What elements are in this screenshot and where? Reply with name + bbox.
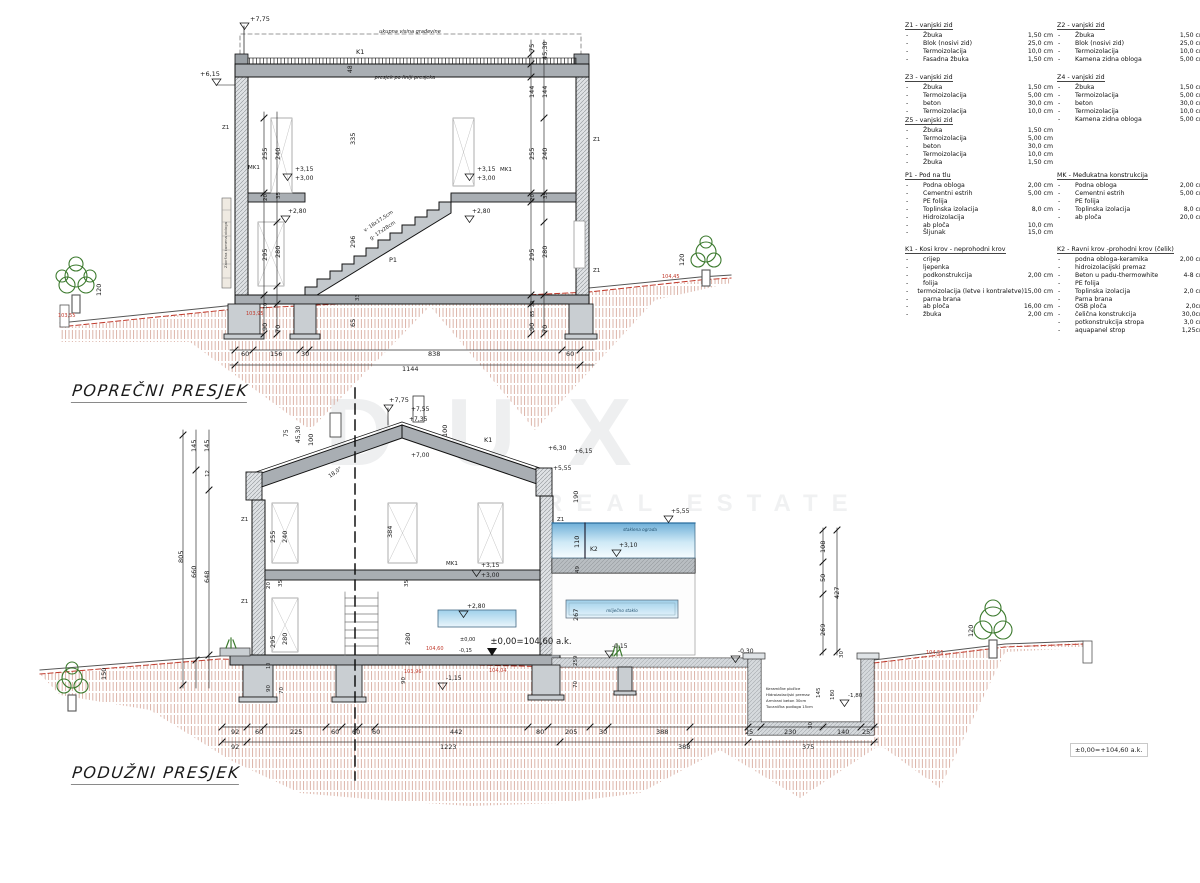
dim-label: 1223 [440, 743, 457, 751]
dim-label: 255 [269, 531, 277, 543]
elevation-label: +7,00 [411, 452, 430, 459]
legend-item: -Žbuka1,50 cm [1057, 32, 1200, 40]
legend-item: -žbuka2,00 cm [905, 311, 1053, 319]
elevation-label: ±0,00 [460, 637, 475, 643]
dim-label: 442 [450, 728, 462, 736]
dim-label: 660 [190, 566, 198, 578]
dim-label: 205 [565, 728, 577, 736]
eave-parapet [536, 468, 552, 496]
eave-parapet [246, 472, 262, 500]
dim-label: 70 [573, 681, 579, 688]
legend-item: -Podna obloga2,00 cm [1057, 182, 1200, 190]
dim-label: 50 [819, 574, 827, 582]
glass-railing-label: staklena ograda [623, 527, 657, 532]
roof-angle-label: 18,0° [328, 466, 344, 480]
dim-label: 90 [401, 677, 407, 684]
dim-label: 259 [573, 655, 579, 666]
elevation-label: +3,00 [481, 572, 500, 579]
dim-label: 240 [281, 531, 289, 543]
dim-label: 20 [266, 582, 272, 589]
pool-layer-note: Hidroizolacijski premaz [766, 692, 810, 697]
legend-item: -Termoizolacija10,0 cm [905, 151, 1053, 159]
legend-item: -Cementni estrih5,00 cm [1057, 190, 1200, 198]
dim-label: 100 [307, 434, 315, 446]
elevation-label: +6,30 [548, 445, 567, 452]
legend-item: -Termoizolacija10,0 cm [905, 48, 1053, 56]
dim-label: 60 [372, 728, 380, 736]
ground-slab [230, 655, 560, 665]
elevation-label: +7,35 [409, 416, 428, 423]
dim-label: 100 [441, 425, 449, 437]
dim-label: 92 [231, 728, 239, 736]
legend-item: -Toplinska izolacija2,0 cm [1057, 288, 1200, 296]
terrain-elevation: 104,04 [489, 668, 507, 674]
pool-layer-note: Armirani beton 30cm [766, 698, 806, 703]
legend-section-title: P1 - Pod na tlu [905, 172, 951, 180]
legend-section-title: Z5 - vanjski zid [905, 117, 953, 125]
dim-label: 375 [802, 743, 814, 751]
legend-section-title: Z3 - vanjski zid [905, 74, 953, 82]
pool-layer-note: Tucanička podloga 15cm [765, 704, 813, 709]
dim-label: 45,30 [295, 426, 302, 443]
layer-ref-label: Z1 [241, 517, 248, 523]
legend-item: -čelična konstrukcija30,0cm [1057, 311, 1200, 319]
datum-note-box: ±0,00=+104,60 a.k. [1070, 743, 1148, 757]
dim-label: 70 [279, 687, 285, 694]
legend-item: -hidroizolacijski premaz [1057, 264, 1200, 272]
legend-item: -Termoizolacija5,00 cm [905, 135, 1053, 143]
dim-label: 60 [566, 350, 574, 358]
elevation-label: +7,75 [389, 396, 409, 404]
dim-label: 60 [241, 350, 249, 358]
legend-item: -beton30,0 cm [1057, 100, 1200, 108]
legend-item: -Podna obloga2,00 cm [905, 182, 1053, 190]
dim-label: 30 [599, 728, 607, 736]
dim-label: 145 [203, 440, 211, 452]
elevation-label: +7,55 [411, 406, 430, 413]
dim-label: 75 [283, 429, 290, 437]
legend-item: -crijep [905, 256, 1053, 264]
legend-item: -podkonstrukcija2,00 cm [905, 272, 1053, 280]
elevation-label: -1,15 [446, 675, 462, 682]
dim-label: 230 [784, 728, 796, 736]
dim-label: 108 [819, 541, 827, 553]
dim-label: 49 [575, 566, 581, 573]
elevation-label: -0,30 [738, 648, 754, 655]
legend-item: -Kamena zidna obloga5,00 cm [1057, 56, 1200, 64]
datum-label: ±0,00=104,60 a.k. [490, 637, 571, 647]
dim-label: 388 [656, 728, 668, 736]
left-wall [252, 500, 265, 655]
terrain-elevation: 104,60 [426, 646, 444, 652]
low-window-glass [438, 610, 516, 627]
dim-label: 280 [404, 633, 412, 645]
dim-label: 35 [278, 580, 284, 587]
legend-item: -Toplinska izolacija8,0 cm [905, 206, 1053, 214]
legend-item: -Toplinska izolacija8,0 cm [1057, 206, 1200, 214]
dim-label: 10 [266, 663, 272, 669]
dim-label: 30 [301, 350, 309, 358]
dim-label: 140 [837, 728, 849, 736]
elevation-label: +2,80 [467, 603, 486, 610]
legend-section-k1: K1 - Kosi krov - neprohodni krov-crijep-… [905, 236, 1053, 319]
legend-section-z5: Z5 - vanjski zid-Žbuka1,50 cm-Termoizola… [905, 107, 1053, 167]
legend-item: -Žbuka1,50 cm [1057, 84, 1200, 92]
legend-item: -PE folija [905, 198, 1053, 206]
legend-item: -Beton u padu-thermowhite4-8 cm [1057, 272, 1200, 280]
dim-label: 110 [573, 536, 581, 548]
dim-label: 92 [231, 743, 239, 751]
legend-section-title: MK - Međukatna konstrukcija [1057, 172, 1148, 180]
legend-item: -podna obloga-keramika2,00 cm [1057, 256, 1200, 264]
legend-section-z2: Z2 - vanjski zid-Žbuka1,50 cm-Blok (nosi… [1057, 12, 1200, 64]
legend-item: -folija [905, 280, 1053, 288]
legend-column-2: Z2 - vanjski zid-Žbuka1,50 cm-Blok (nosi… [1057, 0, 1200, 336]
legend-item: -ab ploča20,0 cm [1057, 214, 1200, 222]
dim-label: 295 [269, 636, 277, 648]
dim-label: 60 [352, 728, 360, 736]
dim-label: 384 [386, 526, 394, 538]
dim-label: 156 [270, 350, 282, 358]
terrain-elevation: 104,55 [926, 650, 944, 656]
section-title-poduzni: PODUŽNI PRESJEK [71, 763, 241, 785]
roof-slope-left [250, 425, 402, 490]
dim-label: 12 [205, 470, 211, 477]
legend-section-title: Z1 - vanjski zid [905, 22, 953, 30]
legend-item: -Blok (nosivi zid)25,0 cm [1057, 40, 1200, 48]
legend-item: -Kamena zidna obloga5,00 cm [1057, 116, 1200, 124]
legend-item: -Termoizolacija10,0 cm [1057, 48, 1200, 56]
legend-item: -aquapanel strop1,25cm [1057, 327, 1200, 335]
elevation-label: -0,15 [612, 643, 628, 650]
dim-label: 267 [572, 609, 580, 621]
legend-section-title: Z4 - vanjski zid [1057, 74, 1105, 82]
dim-label: 25 [862, 728, 870, 736]
layer-ref-label: MK1 [446, 561, 458, 567]
elevation-label: -0,15 [459, 648, 472, 654]
dim-label: 805 [177, 551, 185, 563]
dim-label: 30 [839, 651, 845, 658]
dim-label: 35 [404, 580, 410, 587]
legend-section-k2: K2 - Ravni krov -prohodni krov (čelik)-p… [1057, 236, 1200, 335]
elevation-label: -1,80 [848, 693, 863, 699]
dim-label: 388 [678, 743, 690, 751]
legend-item: -PE folija [1057, 198, 1200, 206]
legend-item: -termoizolacija (letve i kontraletve)15,… [905, 288, 1053, 296]
dim-label: 80 [536, 728, 544, 736]
elevation-label: +5,55 [553, 465, 572, 472]
dim-label: 145 [816, 687, 822, 698]
dim-label: 150 [100, 668, 108, 680]
right-wall [540, 496, 553, 655]
legend-item: -Žbuka1,50 cm [905, 84, 1053, 92]
dim-label: 25 [745, 728, 753, 736]
dim-label: 1144 [402, 365, 419, 373]
layer-ref-label: K1 [484, 436, 492, 444]
legend-section-title: Z2 - vanjski zid [1057, 22, 1105, 30]
dim-label: 180 [830, 689, 836, 700]
staircase [345, 592, 378, 655]
legend-section-z4: Z4 - vanjski zid-Žbuka1,50 cm-Termoizola… [1057, 64, 1200, 124]
layer-ref-label: Z1 [557, 517, 564, 523]
dim-label: 90 [266, 685, 272, 692]
elevation-label: +6,15 [574, 448, 593, 455]
dim-label: 838 [428, 350, 440, 358]
roof-vent [330, 413, 341, 437]
layer-ref-label: K2 [590, 546, 598, 553]
dim-label: 60 [255, 728, 263, 736]
dim-label: 427 [833, 587, 841, 599]
legend-column-1: Z1 - vanjski zid-Žbuka1,50 cm-Blok (nosi… [905, 0, 1053, 336]
elevation-label: +3,10 [619, 542, 638, 549]
dim-label: 648 [203, 571, 211, 583]
legend-item: -Blok (nosivi zid)25,0 cm [905, 40, 1053, 48]
drawing-sheet: DUX REAL ESTATE [0, 0, 1200, 883]
legend-item: -Termoizolacija10,0 cm [1057, 108, 1200, 116]
legend-section-title: K2 - Ravni krov -prohodni krov (čelik) [1057, 246, 1174, 254]
legend-item: -Cementni estrih5,00 cm [905, 190, 1053, 198]
dim-label: 60 [331, 728, 339, 736]
construction-layers-legend: Z1 - vanjski zid-Žbuka1,50 cm-Blok (nosi… [0, 0, 1200, 340]
legend-item: -potkonstrukcija stropa3,0 cm [1057, 319, 1200, 327]
dim-label: 30 [808, 722, 814, 729]
legend-item: -Žbuka1,50 cm [905, 127, 1053, 135]
legend-item: -Termoizolacija5,00 cm [905, 92, 1053, 100]
terrain-marker [1083, 641, 1092, 663]
legend-item: -PE folija [1057, 280, 1200, 288]
legend-item: -Hidroizolacija [905, 214, 1053, 222]
legend-item: -Termoizolacija5,00 cm [1057, 92, 1200, 100]
dim-label: 120 [967, 625, 975, 637]
legend-section-title: K1 - Kosi krov - neprohodni krov [905, 246, 1006, 254]
elevation-label: +3,15 [481, 562, 500, 569]
dim-label: 145 [190, 440, 198, 452]
legend-section-p1: P1 - Pod na tlu-Podna obloga2,00 cm-Ceme… [905, 162, 1053, 237]
dim-label: 190 [572, 491, 580, 503]
elevation-label: +5,55 [671, 508, 690, 515]
layer-ref-label: Z1 [241, 599, 248, 605]
dim-label: 269 [819, 624, 827, 636]
terrain-elevation: 103,96 [404, 669, 422, 675]
milky-glass-label: mliječno staklo [606, 608, 638, 613]
dim-label: 280 [281, 633, 289, 645]
legend-section-z1: Z1 - vanjski zid-Žbuka1,50 cm-Blok (nosi… [905, 12, 1053, 64]
legend-item: -Fasadna žbuka1,50 cm [905, 56, 1053, 64]
section-title-poprecni: POPREČNI PRESJEK [71, 381, 250, 403]
porch-step [220, 648, 250, 656]
legend-item: -ljepenka [905, 264, 1053, 272]
legend-item: -Žbuka1,50 cm [905, 32, 1053, 40]
legend-item: -beton30,0 cm [905, 143, 1053, 151]
legend-section-mk: MK - Međukatna konstrukcija-Podna obloga… [1057, 162, 1200, 222]
plant [226, 638, 236, 648]
pool-layer-note: Keramičke pločice [766, 686, 801, 691]
dim-label: 225 [290, 728, 302, 736]
